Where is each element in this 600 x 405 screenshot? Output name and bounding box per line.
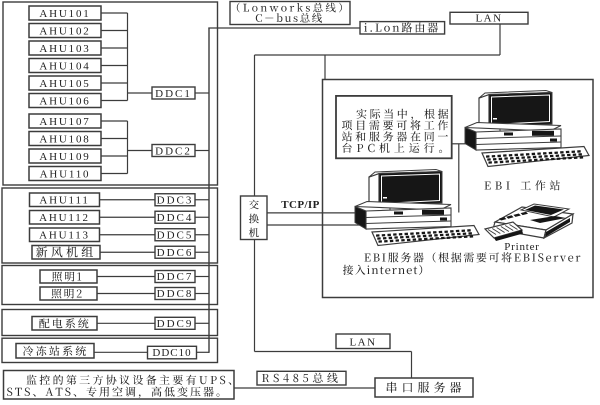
svg-text:AHU101: AHU101: [39, 8, 90, 20]
svg-text:TCP/IP: TCP/IP: [281, 199, 319, 211]
svg-text:DDC2: DDC2: [155, 145, 192, 157]
svg-text:AHU106: AHU106: [39, 96, 90, 108]
svg-text:DDC5: DDC5: [157, 229, 194, 241]
svg-text:DDC6: DDC6: [157, 247, 194, 259]
svg-text:AHU107: AHU107: [39, 116, 90, 128]
svg-text:AHU104: AHU104: [39, 61, 90, 73]
svg-text:AHU113: AHU113: [39, 230, 90, 242]
svg-text:AHU110: AHU110: [40, 169, 91, 181]
svg-text:AHU103: AHU103: [39, 43, 90, 55]
svg-text:DDC3: DDC3: [157, 194, 194, 206]
svg-text:DDC4: DDC4: [157, 212, 194, 224]
svg-text:Printer: Printer: [504, 241, 540, 253]
svg-text:AHU111: AHU111: [39, 195, 89, 207]
svg-text:LAN: LAN: [349, 337, 376, 349]
svg-text:AHU108: AHU108: [39, 134, 90, 146]
svg-text:DDC10: DDC10: [152, 347, 191, 359]
svg-text:LAN: LAN: [475, 12, 502, 24]
svg-text:DDC1: DDC1: [155, 88, 192, 100]
svg-text:AHU105: AHU105: [39, 78, 90, 90]
svg-text:AHU109: AHU109: [39, 151, 90, 163]
svg-text:AHU102: AHU102: [39, 26, 90, 38]
svg-text:AHU112: AHU112: [39, 212, 90, 224]
svg-text:DDC9: DDC9: [157, 318, 194, 330]
svg-text:DDC8: DDC8: [157, 288, 194, 300]
svg-text:DDC7: DDC7: [157, 271, 194, 283]
